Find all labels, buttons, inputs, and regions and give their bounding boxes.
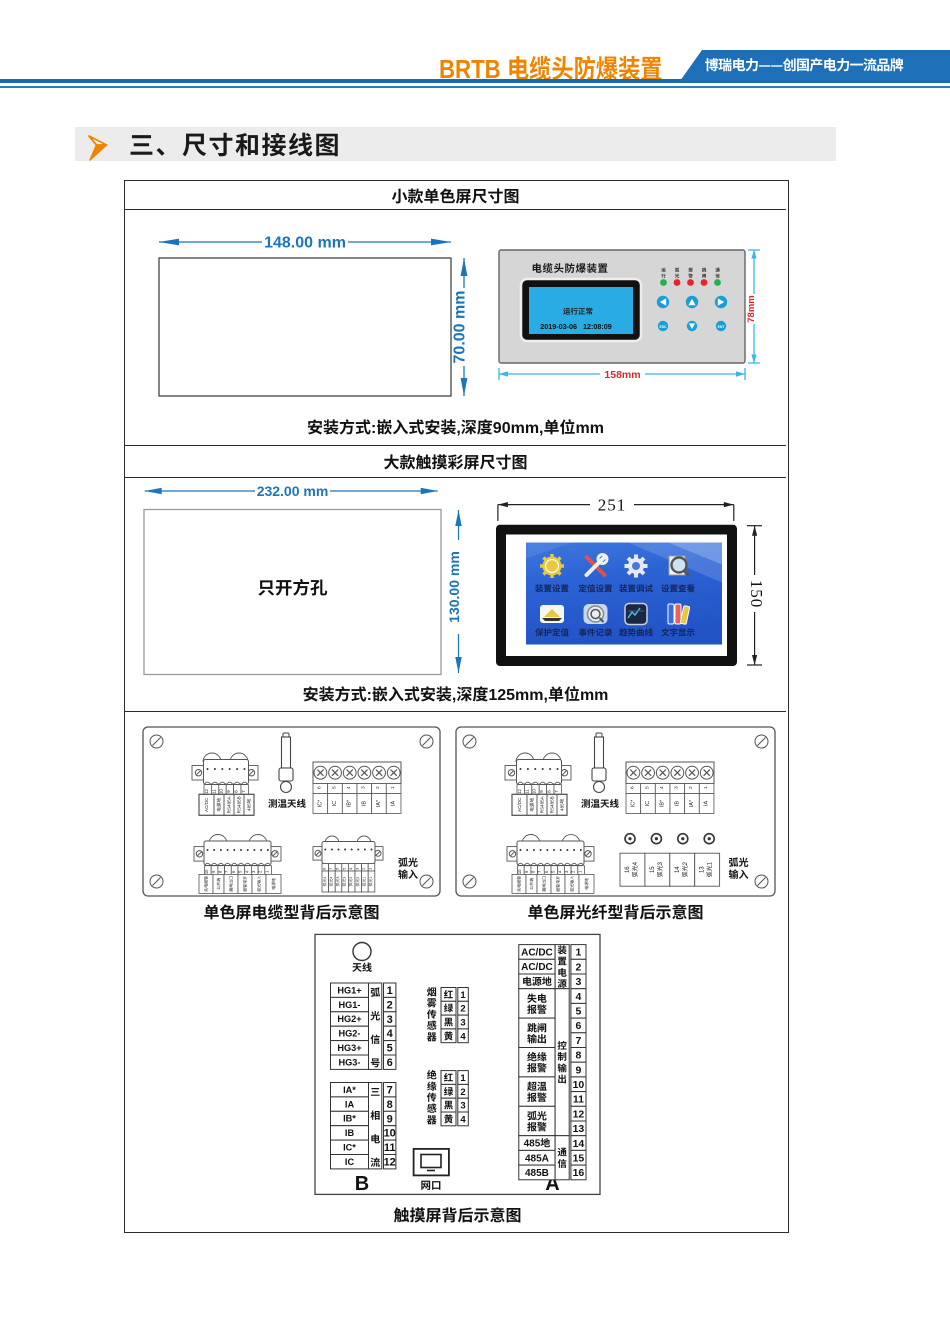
svg-text:ESC: ESC [660,324,668,329]
svg-text:器: 器 [427,1111,437,1126]
svg-text:流: 流 [370,1154,380,1169]
svg-text:15: 15 [573,1150,585,1165]
svg-text:HG1+: HG1+ [337,982,361,996]
svg-text:2: 2 [687,786,694,789]
svg-text:公共端: 公共端 [529,878,535,890]
svg-text:9: 9 [539,790,545,793]
svg-text:信: 信 [715,274,720,280]
svg-text:ENT: ENT [718,324,726,329]
svg-text:电源地: 电源地 [522,973,552,988]
svg-text:9: 9 [226,790,232,793]
svg-text:12: 12 [384,1154,396,1170]
svg-text:11: 11 [211,789,217,794]
svg-text:2: 2 [374,786,381,789]
svg-text:IA: IA [702,801,710,806]
svg-text:10: 10 [532,789,538,795]
svg-text:出: 出 [557,1072,567,1086]
svg-text:IB*: IB* [343,1111,356,1125]
svg-text:弧光3: 弧光3 [342,877,348,887]
svg-text:信: 信 [370,1031,380,1046]
svg-text:B: B [355,1167,369,1196]
svg-text:1: 1 [702,786,709,789]
svg-text:16: 16 [573,1165,585,1180]
svg-text:号: 号 [370,1054,380,1069]
svg-text:3: 3 [576,974,582,989]
svg-text:器: 器 [427,1028,437,1043]
svg-text:绿: 绿 [444,1084,454,1098]
svg-text:IC*: IC* [315,799,323,807]
svg-text:IC: IC [345,1154,355,1168]
svg-text:5: 5 [643,786,650,789]
svg-text:2: 2 [460,1001,465,1015]
svg-text:IB: IB [345,1125,355,1139]
svg-text:IC*: IC* [343,1140,356,1154]
svg-text:485地: 485地 [524,1135,551,1150]
svg-text:6: 6 [576,1018,582,1033]
svg-text:弧光2: 弧光2 [355,877,361,887]
svg-text:3: 3 [360,786,367,789]
svg-text:6: 6 [387,1054,393,1070]
svg-text:10: 10 [573,1077,585,1092]
svg-text:弧光4: 弧光4 [322,877,328,887]
svg-text:黄: 黄 [444,1111,454,1125]
svg-text:4: 4 [460,1111,466,1125]
svg-text:警: 警 [688,274,693,280]
svg-text:2019-03-06 12:08:09: 2019-03-06 12:08:09 [540,322,612,332]
svg-text:8: 8 [234,790,240,793]
svg-text:RS485B: RS485B [237,796,243,813]
svg-text:事件记录: 事件记录 [578,627,613,639]
svg-text:IA: IA [389,801,397,806]
svg-text:RS485A: RS485A [540,795,546,813]
svg-text:输出: 输出 [527,1030,547,1045]
svg-text:报警: 报警 [527,1119,547,1134]
svg-text:AC/DC: AC/DC [521,943,553,958]
svg-text:保护定值: 保护定值 [535,627,570,639]
svg-text:跳闸出口: 跳闸出口 [542,876,548,892]
svg-text:7: 7 [554,790,560,793]
svg-text:1: 1 [576,945,582,960]
svg-text:12: 12 [517,789,523,795]
svg-text:130.00 mm: 130.00 mm [444,551,464,623]
svg-text:电源地: 电源地 [217,798,223,812]
svg-text:只开方孔: 只开方孔 [258,575,328,600]
svg-text:HG2-: HG2- [339,1026,361,1040]
svg-text:弧光输入: 弧光输入 [257,876,263,892]
svg-text:黑: 黑 [444,1015,454,1029]
svg-text:弧光4: 弧光4 [328,877,334,887]
svg-text:485地: 485地 [247,798,253,811]
svg-text:4: 4 [460,1028,466,1042]
svg-text:定值设置: 定值设置 [578,583,613,595]
svg-text:158mm: 158mm [604,367,640,382]
svg-text:IA*: IA* [343,1082,356,1096]
svg-text:IB*: IB* [345,799,353,807]
svg-text:源: 源 [557,976,567,990]
svg-text:485地: 485地 [560,798,566,811]
svg-text:电: 电 [370,1130,380,1145]
svg-text:RS485A: RS485A [227,795,233,813]
svg-text:红: 红 [444,1070,454,1084]
svg-text:红: 红 [444,987,454,1001]
svg-text:输入: 输入 [729,866,749,881]
svg-text:趋势曲线: 趋势曲线 [619,627,654,639]
svg-text:三: 三 [370,1084,380,1099]
svg-text:AC/DC: AC/DC [517,797,523,812]
svg-text:报警: 报警 [527,1001,547,1016]
svg-text:电源地: 电源地 [584,878,590,890]
svg-text:HG3+: HG3+ [337,1040,361,1054]
svg-text:电源地: 电源地 [271,878,277,890]
svg-text:相: 相 [370,1107,380,1122]
svg-text:报警: 报警 [527,1060,547,1075]
svg-text:2: 2 [576,959,582,974]
svg-text:1: 1 [460,987,466,1001]
svg-text:1: 1 [389,786,396,789]
svg-text:信: 信 [557,1156,567,1170]
svg-text:天线: 天线 [352,959,372,974]
svg-text:150: 150 [746,580,771,609]
svg-text:设置查看: 设置查看 [661,583,696,595]
svg-text:3: 3 [673,786,680,789]
svg-text:10: 10 [219,789,225,795]
svg-text:弧光2: 弧光2 [348,877,354,887]
svg-text:70.00 mm: 70.00 mm [446,291,470,364]
svg-text:弧光2: 弧光2 [680,861,689,877]
svg-text:10: 10 [517,869,523,874]
svg-text:3: 3 [460,1015,465,1029]
svg-text:绿: 绿 [444,1001,454,1015]
svg-text:报警常开: 报警常开 [243,876,249,892]
svg-text:电缆头防爆装置: 电缆头防爆装置 [532,261,609,276]
svg-text:IC: IC [643,801,651,806]
svg-text:报警: 报警 [527,1089,547,1104]
svg-text:12: 12 [573,1106,585,1121]
svg-text:弧光3: 弧光3 [655,861,664,877]
svg-text:6: 6 [629,786,636,789]
svg-text:1: 1 [460,1070,466,1084]
svg-text:黑: 黑 [444,1098,454,1112]
svg-text:7: 7 [576,1033,582,1048]
svg-text:485B: 485B [525,1164,549,1179]
svg-text:公共端: 公共端 [216,878,222,890]
svg-text:4: 4 [658,786,665,789]
svg-text:8: 8 [576,1048,582,1063]
svg-text:报警常开: 报警常开 [556,876,562,892]
svg-text:运行正常: 运行正常 [563,306,593,317]
svg-text:AC/DC: AC/DC [204,797,210,812]
svg-text:6: 6 [316,786,323,789]
svg-text:7: 7 [241,790,247,793]
svg-text:IA*: IA* [687,799,695,807]
svg-text:14: 14 [573,1136,585,1151]
svg-text:13: 13 [573,1121,585,1136]
svg-text:12: 12 [204,789,210,795]
svg-text:失电报警: 失电报警 [204,876,210,892]
svg-text:78mm: 78mm [743,295,757,322]
svg-text:网口: 网口 [421,1178,442,1193]
svg-text:HG2+: HG2+ [337,1011,361,1025]
svg-text:弧: 弧 [370,984,380,999]
svg-text:5: 5 [330,786,337,789]
svg-text:11: 11 [524,789,530,794]
svg-text:IC*: IC* [628,799,636,807]
svg-text:251: 251 [598,491,627,516]
svg-text:装置调试: 装置调试 [619,583,654,595]
svg-text:IC: IC [330,801,338,806]
svg-text:HG1-: HG1- [339,997,361,1011]
svg-text:装置设置: 装置设置 [535,583,570,595]
svg-text:4: 4 [576,989,582,1004]
svg-text:148.00 mm: 148.00 mm [264,229,346,253]
svg-text:光: 光 [675,274,680,280]
svg-text:弧光输入: 弧光输入 [570,876,576,892]
svg-text:弧光1: 弧光1 [705,861,714,877]
svg-text:失电报警: 失电报警 [517,876,523,892]
svg-text:IB: IB [359,801,367,806]
svg-text:232.00 mm: 232.00 mm [257,481,329,501]
svg-text:闸: 闸 [702,274,707,280]
svg-text:IB: IB [672,801,680,806]
svg-text:弧光4: 弧光4 [630,861,639,877]
svg-text:行: 行 [661,274,666,280]
svg-text:跳闸出口: 跳闸出口 [229,876,235,892]
svg-text:文字显示: 文字显示 [661,627,696,639]
svg-text:IA: IA [345,1096,355,1110]
svg-text:IB*: IB* [658,799,666,807]
svg-text:电源地: 电源地 [530,798,536,812]
svg-text:RS485B: RS485B [550,796,556,813]
svg-text:3: 3 [460,1098,465,1112]
svg-text:AC/DC: AC/DC [521,958,553,973]
svg-text:11: 11 [573,1092,584,1107]
svg-text:弧光1: 弧光1 [368,877,374,887]
svg-text:测温天线: 测温天线 [581,796,620,810]
svg-text:HG3-: HG3- [339,1054,361,1068]
svg-text:4: 4 [345,786,352,789]
svg-text:2: 2 [460,1084,465,1098]
svg-text:5: 5 [576,1003,582,1018]
svg-text:弧光1: 弧光1 [361,877,367,887]
svg-text:8: 8 [547,790,553,793]
svg-text:9: 9 [576,1062,582,1077]
svg-text:黄: 黄 [444,1028,454,1042]
svg-text:IA*: IA* [374,799,382,807]
svg-text:弧光3: 弧光3 [335,877,341,887]
svg-text:10: 10 [204,869,210,874]
svg-text:485A: 485A [525,1149,549,1164]
svg-text:测温天线: 测温天线 [268,796,307,810]
svg-text:输入: 输入 [398,866,418,881]
svg-text:光: 光 [370,1007,380,1022]
